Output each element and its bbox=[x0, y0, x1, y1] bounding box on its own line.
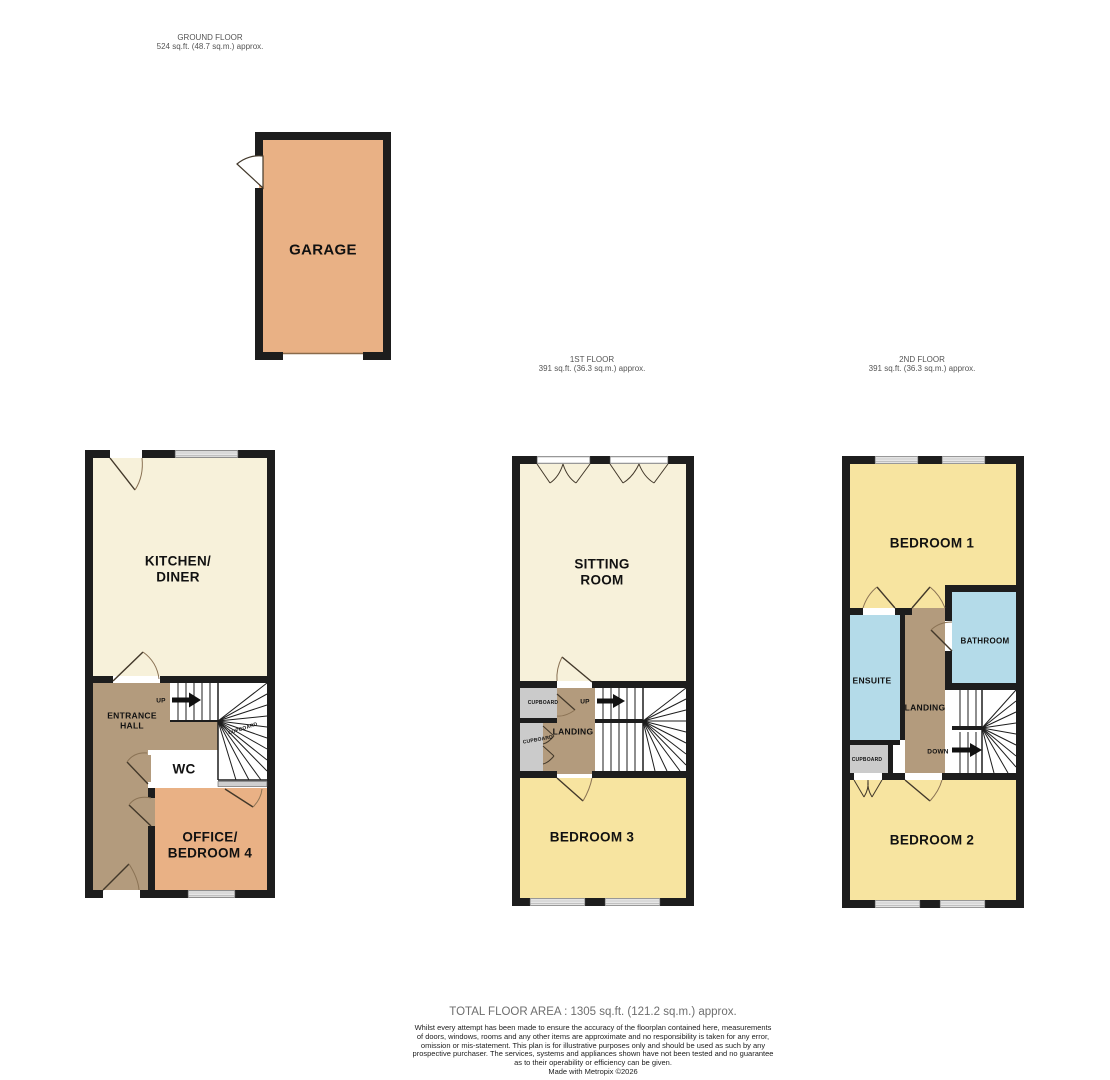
second-floor-area: 391 sq.ft. (36.3 sq.m.) approx. bbox=[869, 365, 976, 374]
bedroom2-label: BEDROOM 2 bbox=[890, 832, 974, 848]
up-label-ground: UP bbox=[156, 698, 165, 705]
wc-label: WC bbox=[172, 761, 195, 777]
bathroom-label: BATHROOM bbox=[961, 637, 1010, 646]
credit-line: Made with Metropix ©2026 bbox=[548, 1068, 637, 1077]
entrance-hall-label: ENTRANCE HALL bbox=[107, 712, 157, 731]
ground-floor-caption: GROUND FLOOR 524 sq.ft. (48.7 sq.m.) app… bbox=[157, 34, 264, 51]
garage-side-door bbox=[237, 156, 263, 188]
bedroom1-label: BEDROOM 1 bbox=[890, 535, 974, 551]
garage-label: GARAGE bbox=[289, 242, 357, 259]
bedroom3-label: BEDROOM 3 bbox=[550, 829, 634, 845]
cupboard-label-second: CUPBOARD bbox=[852, 757, 883, 763]
first-floor-caption: 1ST FLOOR 391 sq.ft. (36.3 sq.m.) approx… bbox=[539, 356, 646, 373]
office-bedroom4-label: OFFICE/ BEDROOM 4 bbox=[168, 830, 252, 861]
landing-label-first: LANDING bbox=[553, 727, 594, 737]
ground-floor-area: 524 sq.ft. (48.7 sq.m.) approx. bbox=[157, 43, 264, 52]
ground-floor-rooms bbox=[93, 458, 267, 890]
floorplan-image: GROUND FLOOR 524 sq.ft. (48.7 sq.m.) app… bbox=[0, 0, 1110, 1080]
kitchen-diner-label: KITCHEN/ DINER bbox=[145, 554, 211, 585]
cupboard-top-label-first: CUPBOARD bbox=[528, 700, 559, 706]
total-floor-area: TOTAL FLOOR AREA : 1305 sq.ft. (121.2 sq… bbox=[449, 1006, 736, 1018]
sitting-room-label: SITTING ROOM bbox=[574, 557, 629, 588]
first-floor-area: 391 sq.ft. (36.3 sq.m.) approx. bbox=[539, 365, 646, 374]
understairs-sill bbox=[218, 782, 267, 787]
second-floor-caption: 2ND FLOOR 391 sq.ft. (36.3 sq.m.) approx… bbox=[869, 356, 976, 373]
down-label-second: DOWN bbox=[927, 749, 948, 756]
up-label-first: UP bbox=[580, 699, 589, 706]
ensuite-label: ENSUITE bbox=[853, 676, 892, 686]
landing-label-second: LANDING bbox=[905, 703, 946, 713]
